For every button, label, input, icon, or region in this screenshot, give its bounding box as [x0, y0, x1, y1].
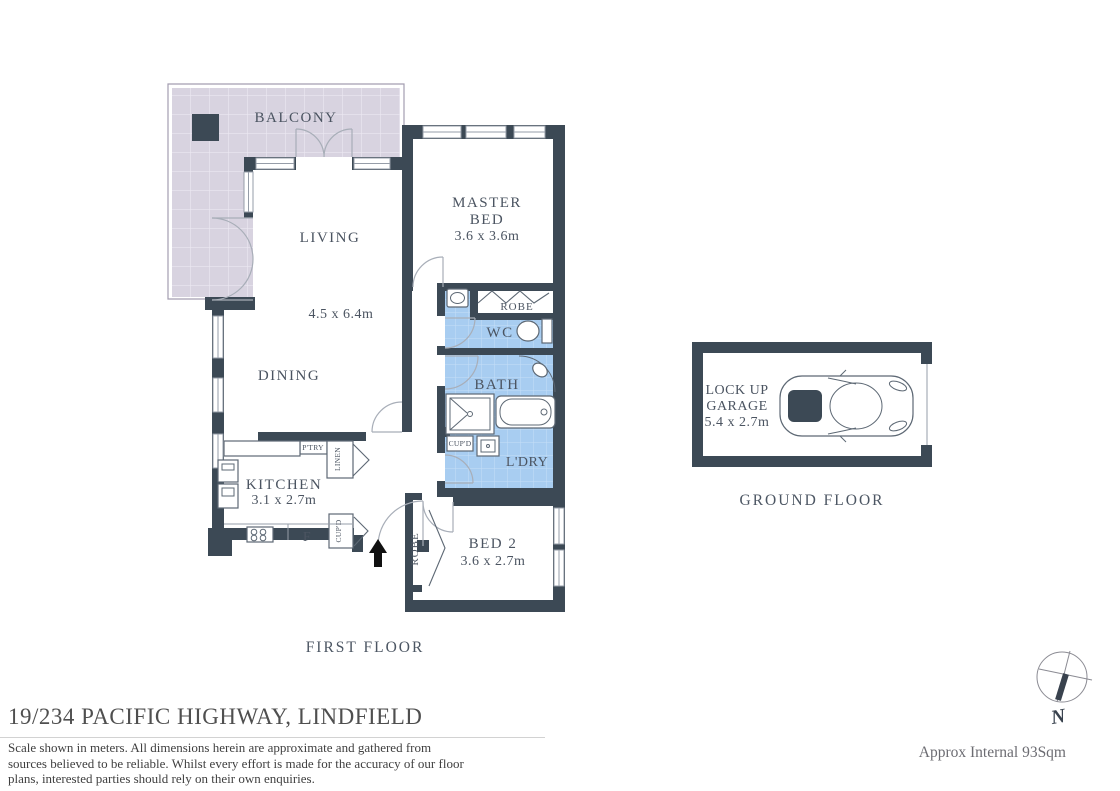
bed2-label: BED 2	[469, 536, 518, 552]
garage-label-1: LOCK UP	[705, 383, 768, 398]
dining-label: DINING	[258, 368, 320, 384]
room-labels: LIVING 4.5 x 6.4m DINING MASTER BED 3.6 …	[246, 195, 548, 569]
cooktop-icon	[247, 527, 273, 542]
balcony: BALCONY	[168, 84, 404, 299]
shower-icon	[446, 394, 494, 434]
disclaimer-line: sources believed to be reliable. Whilst …	[8, 756, 464, 772]
fridge-icon	[218, 460, 238, 508]
garage-labels: LOCK UP GARAGE 5.4 x 2.7m	[705, 383, 770, 430]
disclaimer: Scale shown in meters. All dimensions he…	[8, 740, 464, 787]
wc-label: WC	[486, 325, 513, 341]
first-floor-title: FIRST FLOOR	[306, 639, 425, 656]
laundry-label: L'DRY	[506, 455, 548, 470]
kitchen-cupboard-label: CUP'D	[334, 519, 343, 542]
master-bed-label-2: BED	[470, 212, 505, 228]
balcony-column	[192, 114, 219, 141]
compass-needle	[1058, 674, 1066, 700]
bathtub-icon	[496, 396, 555, 428]
laundry-cupboard-label: CUP'D	[449, 439, 472, 448]
disclaimer-line: Scale shown in meters. All dimensions he…	[8, 740, 464, 756]
linen-label: LINEN	[333, 447, 342, 471]
ground-floor-title: GROUND FLOOR	[740, 492, 885, 509]
car-icon	[780, 370, 913, 442]
living-label: LIVING	[300, 230, 361, 246]
laundry-tub-icon	[477, 436, 499, 456]
compass-icon: N	[1037, 651, 1092, 729]
bed2-dims: 3.6 x 2.7m	[461, 554, 526, 569]
basin-icon	[447, 289, 468, 307]
entry-arrow-icon	[369, 539, 387, 567]
garage-label-2: GARAGE	[706, 399, 767, 414]
kitchen-dims: 3.1 x 2.7m	[252, 493, 317, 508]
master-bed-dims: 3.6 x 3.6m	[455, 229, 520, 244]
first-floor-plan: BALCONY	[168, 84, 565, 656]
bath-label: BATH	[474, 377, 519, 393]
master-robe-label: ROBE	[500, 301, 533, 313]
living-dims: 4.5 x 6.4m	[309, 307, 374, 322]
kitchen-label: KITCHEN	[246, 477, 322, 493]
property-address: 19/234 PACIFIC HIGHWAY, LINDFIELD	[8, 704, 422, 730]
pantry-label: P'TRY	[302, 443, 324, 452]
master-bed-label-1: MASTER	[452, 195, 522, 211]
compass-north-label: N	[1048, 705, 1069, 730]
floor-plan-drawing: BALCONY	[0, 0, 1120, 791]
disclaimer-line: plans, interested parties should rely on…	[8, 771, 464, 787]
ground-floor-plan: LOCK UP GARAGE 5.4 x 2.7m GROUND FLOOR	[692, 342, 932, 509]
fridge-label: F	[303, 530, 311, 545]
floor-plan-page: BALCONY	[0, 0, 1120, 791]
toilet-icon	[517, 319, 552, 343]
footer-divider	[0, 737, 545, 738]
balcony-label: BALCONY	[254, 110, 337, 126]
approx-internal-area: Approx Internal 93Sqm	[919, 744, 1066, 762]
bed2-robe-label: ROBE	[409, 532, 421, 565]
garage-dims: 5.4 x 2.7m	[705, 415, 770, 430]
